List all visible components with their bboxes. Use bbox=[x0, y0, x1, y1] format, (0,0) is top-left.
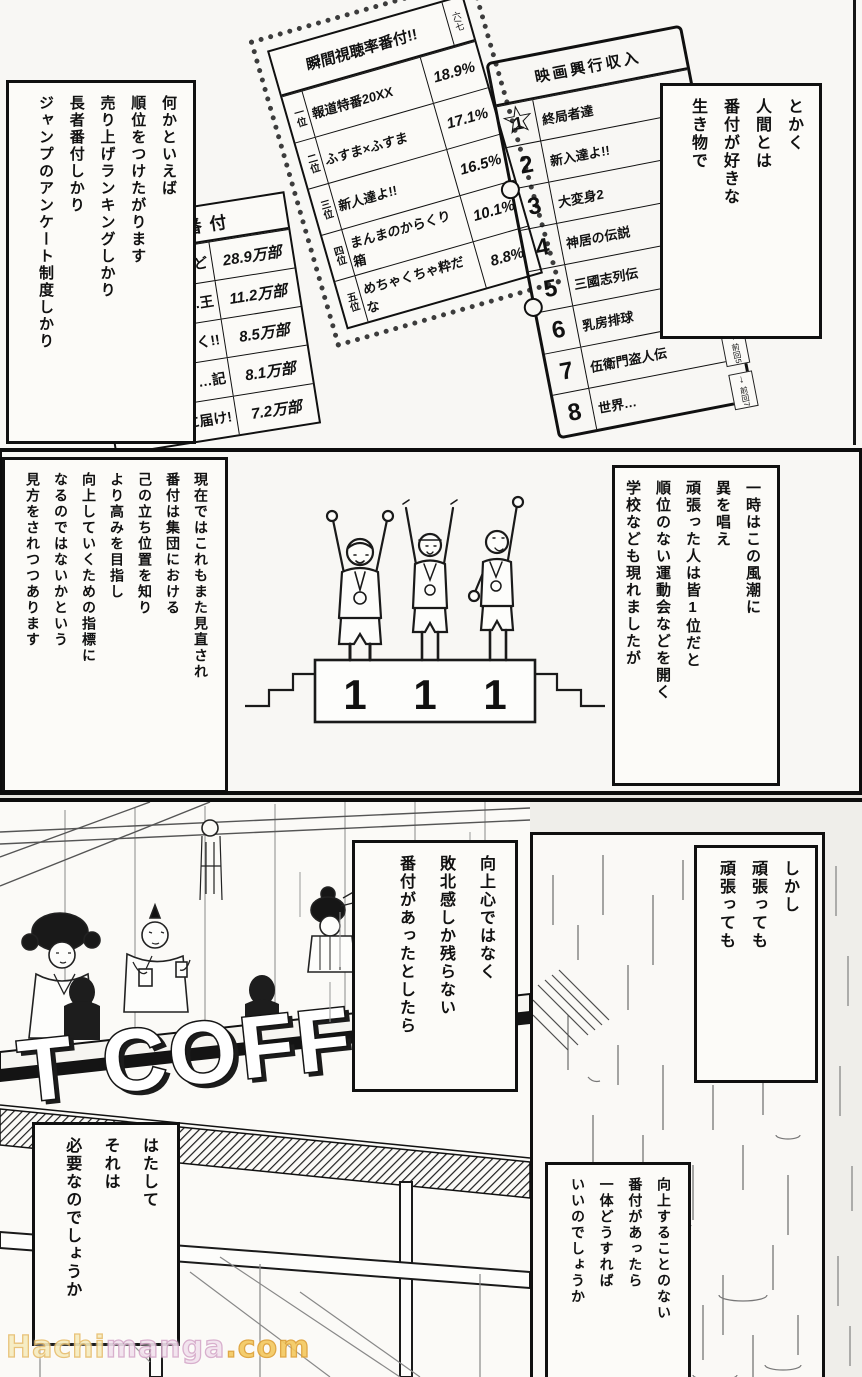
narration-box-rankings-reconsidered: 現在ではこれもまた見直され 番付は集団における 己の立ち位置を知り より高みを目… bbox=[2, 457, 228, 793]
panel-middle: 1 1 1 現在ではこれもまた見直され 番付は集団における 己の立ち位置を知り … bbox=[0, 448, 862, 795]
watermark-part: .com bbox=[225, 1330, 310, 1365]
rank-number: 8 bbox=[553, 389, 597, 436]
narration-box-is-it-necessary: はたして それは 必要なのでしょうか bbox=[32, 1122, 180, 1346]
narration-line: 人間とは bbox=[745, 98, 777, 324]
narration-line: 長者番付しかり bbox=[60, 95, 91, 429]
site-watermark: Hachimanga.com bbox=[6, 1330, 310, 1365]
page-edge-rule bbox=[853, 0, 856, 445]
narration-line: 頑張った人は皆1位だと bbox=[677, 480, 707, 771]
diagonal-hatch bbox=[533, 970, 609, 1050]
narration-line: 学校なども現れましたが bbox=[617, 480, 647, 771]
narration-line: 生き物で bbox=[681, 98, 713, 324]
narration-line: 番付があったら bbox=[621, 1177, 650, 1366]
narration-line: 敗北感しか残らない bbox=[425, 855, 465, 1077]
narration-line: 売り上げランキングしかり bbox=[91, 95, 122, 429]
panel-top: 瞬間視聴率番付!! 六/七 一位 報道特番20XX 18.9% 二位 ふすま×ふ… bbox=[0, 0, 862, 448]
narration-box-only-defeat: 向上心ではなく 敗北感しか残らない 番付があったとしたら bbox=[352, 840, 518, 1092]
narration-line: 向上することのない bbox=[649, 1177, 678, 1366]
watermark-part: manga bbox=[106, 1330, 226, 1365]
rank-number: 4 bbox=[521, 224, 565, 271]
narration-line: 己の立ち位置を知り bbox=[131, 472, 159, 778]
rank-number: 6 bbox=[537, 306, 581, 353]
podium-number: 1 bbox=[483, 671, 506, 718]
narration-box-ranking-examples: 何かといえば 順位をつけたがります 売り上げランキングしかり 長者番付しかり ジ… bbox=[6, 80, 196, 444]
narration-line: それは bbox=[90, 1137, 128, 1331]
narration-box-humans-love-rankings: とかく 人間とは 番付が好きな 生き物で bbox=[660, 83, 822, 339]
narration-line: 異を唱え bbox=[707, 480, 737, 771]
narration-box-everyone-first-place: 一時はこの風潮に 異を唱え 頑張った人は皆1位だと 順位のない運動会などを開く … bbox=[612, 465, 780, 786]
narration-line: より高みを目指し bbox=[103, 472, 131, 778]
narration-line: 番付があったとしたら bbox=[385, 855, 425, 1077]
narration-line: 必要なのでしょうか bbox=[52, 1137, 90, 1331]
narration-line: 見方をされつつあります bbox=[19, 472, 47, 778]
narration-line: 頑張っても bbox=[709, 860, 741, 1068]
narration-line: なるのではないかという bbox=[47, 472, 75, 778]
narration-line: いいのでしょうか bbox=[563, 1177, 592, 1366]
narration-line: 番付が好きな bbox=[713, 98, 745, 324]
kid-right bbox=[469, 497, 523, 660]
podium-number: 1 bbox=[343, 671, 366, 718]
narration-line: 向上心ではなく bbox=[465, 855, 505, 1077]
narration-line: 向上していくための指標に bbox=[75, 472, 103, 778]
previous-rank-marker: ↓ 前回7 bbox=[728, 370, 759, 410]
narration-line: はたして bbox=[129, 1137, 167, 1331]
podium-illustration: 1 1 1 bbox=[245, 460, 605, 738]
narration-line: 一時はこの風潮に bbox=[737, 480, 767, 771]
narration-line: 一体どうすれば bbox=[592, 1177, 621, 1366]
rain-strip bbox=[828, 836, 860, 1377]
narration-box-what-should-we-do: 向上することのない 番付があったら 一体どうすれば いいのでしょうか bbox=[545, 1162, 691, 1377]
narration-line: ジャンプのアンケート制度しかり bbox=[29, 95, 60, 429]
manga-page: 瞬間視聴率番付!! 六/七 一位 報道特番20XX 18.9% 二位 ふすま×ふ… bbox=[0, 0, 862, 1377]
narration-line: しかし bbox=[773, 860, 805, 1068]
narration-line: 頑張っても bbox=[741, 860, 773, 1068]
watermark-part: Hachi bbox=[6, 1330, 106, 1365]
narration-line: とかく bbox=[777, 98, 809, 324]
narration-line: 番付は集団における bbox=[159, 472, 187, 778]
kid-left bbox=[327, 511, 393, 660]
narration-line: 何かといえば bbox=[152, 95, 183, 429]
narration-line: 順位をつけたがります bbox=[122, 95, 153, 429]
narration-line: 現在ではこれもまた見直され bbox=[187, 472, 215, 778]
panel-bottom: T COFFEE T COFFEE bbox=[0, 798, 862, 1377]
narration-box-however: しかし 頑張っても 頑張っても bbox=[694, 845, 818, 1083]
rank-number: 7 bbox=[545, 348, 589, 395]
narration-line: 順位のない運動会などを開く bbox=[647, 480, 677, 771]
down-arrow-icon: ↓ bbox=[730, 373, 754, 388]
podium-number: 1 bbox=[413, 671, 436, 718]
kid-center bbox=[403, 500, 457, 660]
